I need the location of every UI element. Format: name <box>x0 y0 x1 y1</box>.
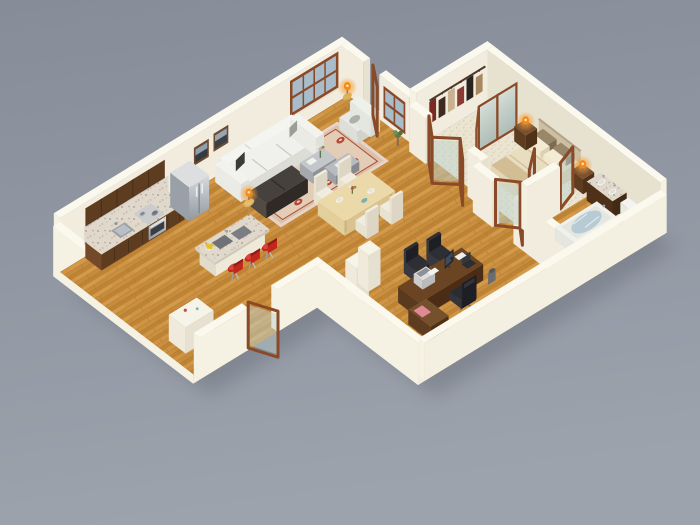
entry-door <box>248 302 278 357</box>
floorplan-canvas <box>0 0 700 525</box>
floor-plan-render <box>0 0 700 525</box>
